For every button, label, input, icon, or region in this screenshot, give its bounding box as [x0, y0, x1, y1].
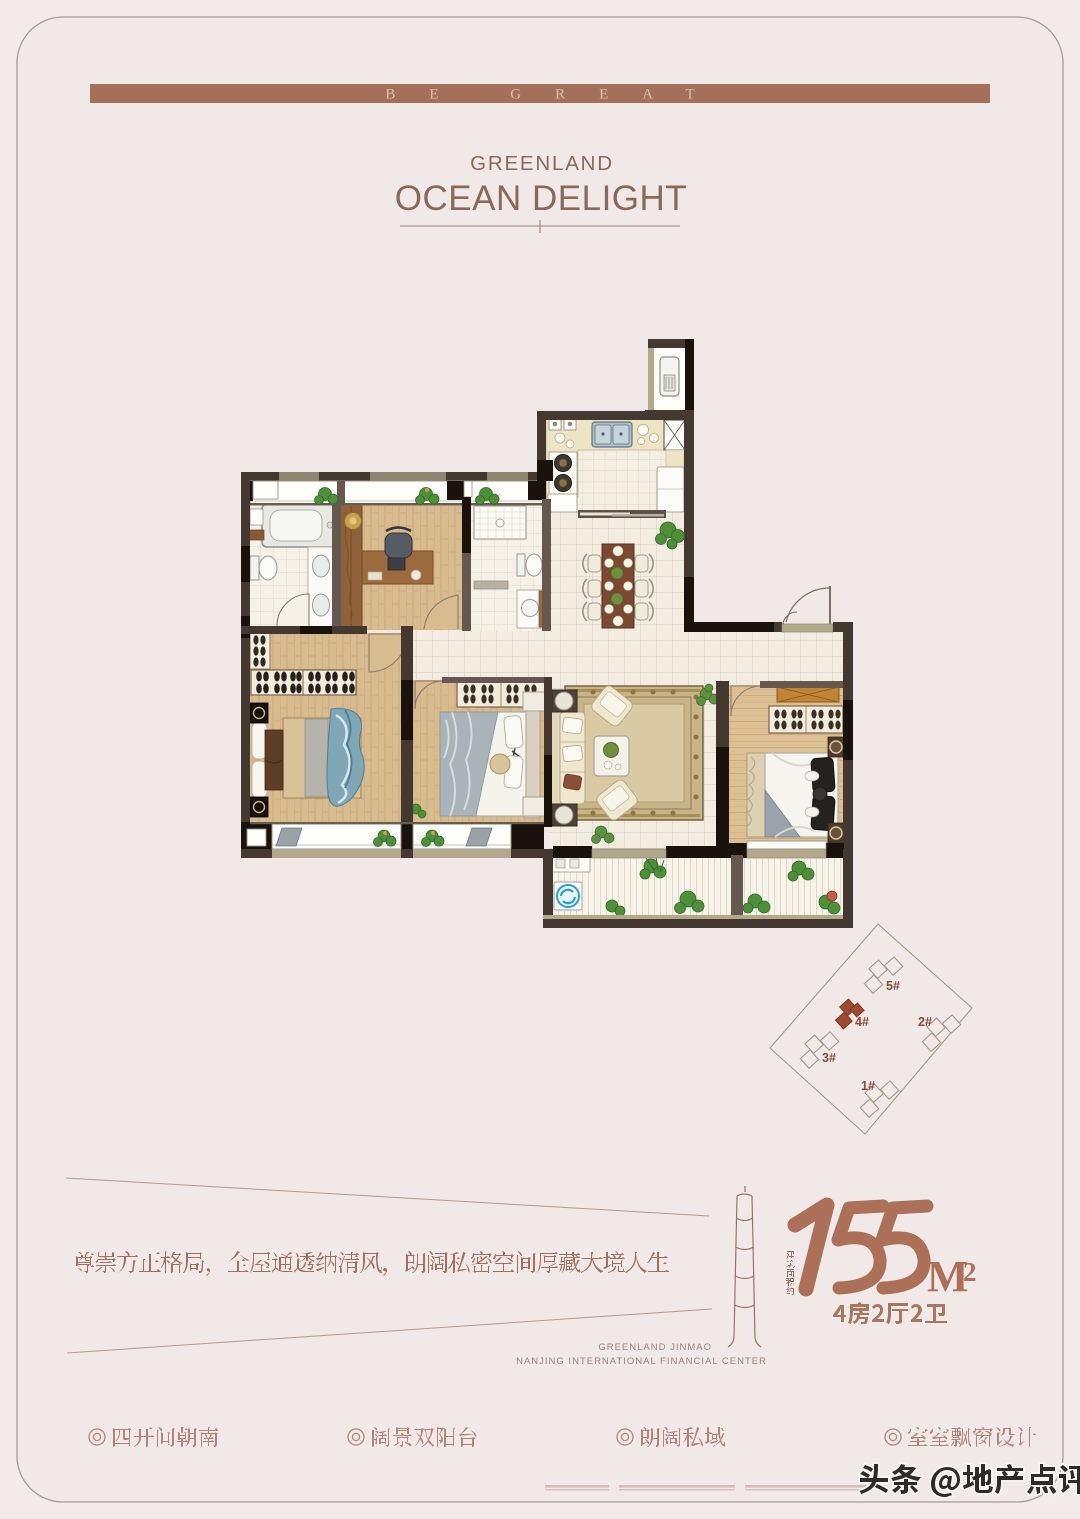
- svg-text:OCEAN DELIGHT: OCEAN DELIGHT: [395, 179, 687, 218]
- svg-text:5#: 5#: [886, 979, 900, 993]
- svg-text:2#: 2#: [918, 1015, 932, 1029]
- svg-text:GREENLAND: GREENLAND: [470, 152, 614, 175]
- svg-text:3#: 3#: [822, 1051, 836, 1065]
- svg-text:NANJING INTERNATIONAL FINANC: NANJING INTERNATIONAL FINANCIAL CENTER: [516, 1356, 767, 1367]
- svg-text:4#: 4#: [855, 1015, 869, 1029]
- svg-text:BE GREAT: BE GREAT: [385, 87, 728, 103]
- svg-text:1#: 1#: [861, 1079, 875, 1093]
- svg-text:2: 2: [963, 1257, 977, 1287]
- svg-text:GREENLAND JINMAO: GREENLAND JINMAO: [598, 1342, 712, 1353]
